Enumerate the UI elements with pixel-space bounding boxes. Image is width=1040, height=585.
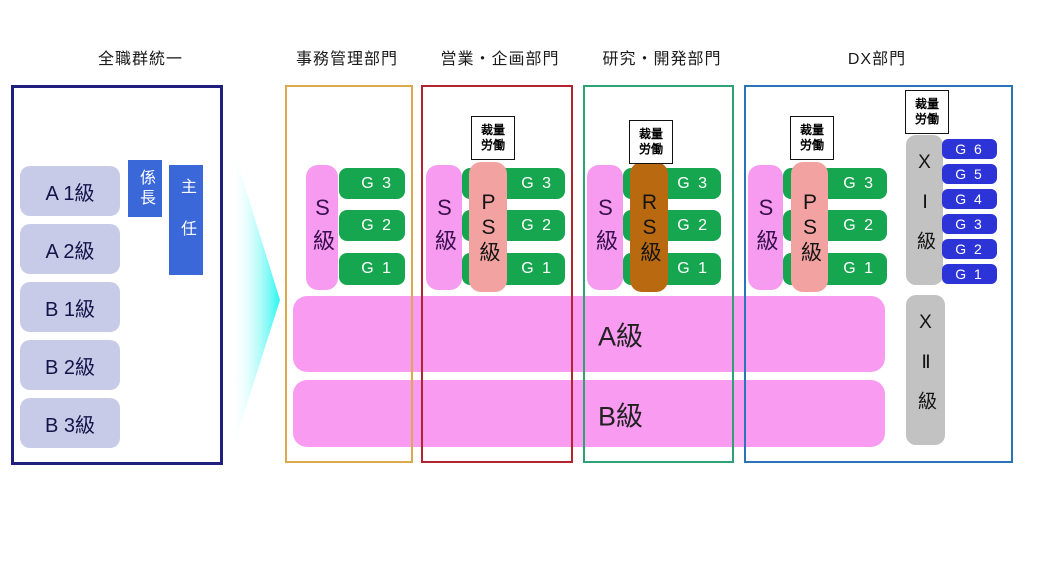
rnd-rs-column: RS級: [630, 162, 668, 292]
role-box-shunin: 主任: [169, 165, 203, 275]
admin-s-column: S級: [306, 165, 338, 290]
diagram-canvas: 全職群統一 事務管理部門 営業・企画部門 研究・開発部門 DX部門 A 1級 A…: [0, 0, 1040, 585]
sales-discretionary-label: 裁量 労働: [471, 116, 515, 160]
dx-ps-column: PS級: [791, 162, 828, 292]
dx-grade-g3b: G 3: [942, 214, 997, 234]
dept-header-dx: DX部門: [787, 45, 967, 67]
grade-box-b2: B 2級: [20, 340, 120, 390]
dx-s-column: S級: [748, 165, 783, 290]
rnd-s-column: S級: [587, 165, 623, 290]
dx-x2-column: XⅡ級: [906, 295, 945, 445]
dx-x1-column: XⅠ級: [906, 135, 943, 285]
dx-grade-g4: G 4: [942, 189, 997, 209]
sales-s-column: S級: [426, 165, 462, 290]
dx-grade-g6: G 6: [942, 139, 997, 159]
admin-grade-g2: G 2: [339, 210, 405, 241]
left-panel-title: 全職群統一: [68, 45, 213, 67]
dx-grade-g1b: G 1: [942, 264, 997, 284]
dx-x1-discretionary-label: 裁量 労働: [905, 90, 949, 134]
sales-ps-column: PS級: [469, 162, 507, 292]
grade-box-b1: B 1級: [20, 282, 120, 332]
dx-grade-g5: G 5: [942, 164, 997, 184]
grade-box-b3: B 3級: [20, 398, 120, 448]
role-box-kakaricho: 係長: [128, 160, 162, 217]
dept-header-rnd: 研究・開発部門: [572, 45, 752, 67]
grade-box-a2: A 2級: [20, 224, 120, 274]
admin-grade-g3: G 3: [339, 168, 405, 199]
grade-box-a1: A 1級: [20, 166, 120, 216]
admin-grade-g1: G 1: [339, 253, 405, 285]
dx-discretionary-label: 裁量 労働: [790, 116, 834, 160]
rnd-discretionary-label: 裁量 労働: [629, 120, 673, 164]
transition-arrow-icon: [233, 145, 283, 451]
dept-header-sales: 営業・企画部門: [410, 45, 590, 67]
dx-grade-g2b: G 2: [942, 239, 997, 259]
